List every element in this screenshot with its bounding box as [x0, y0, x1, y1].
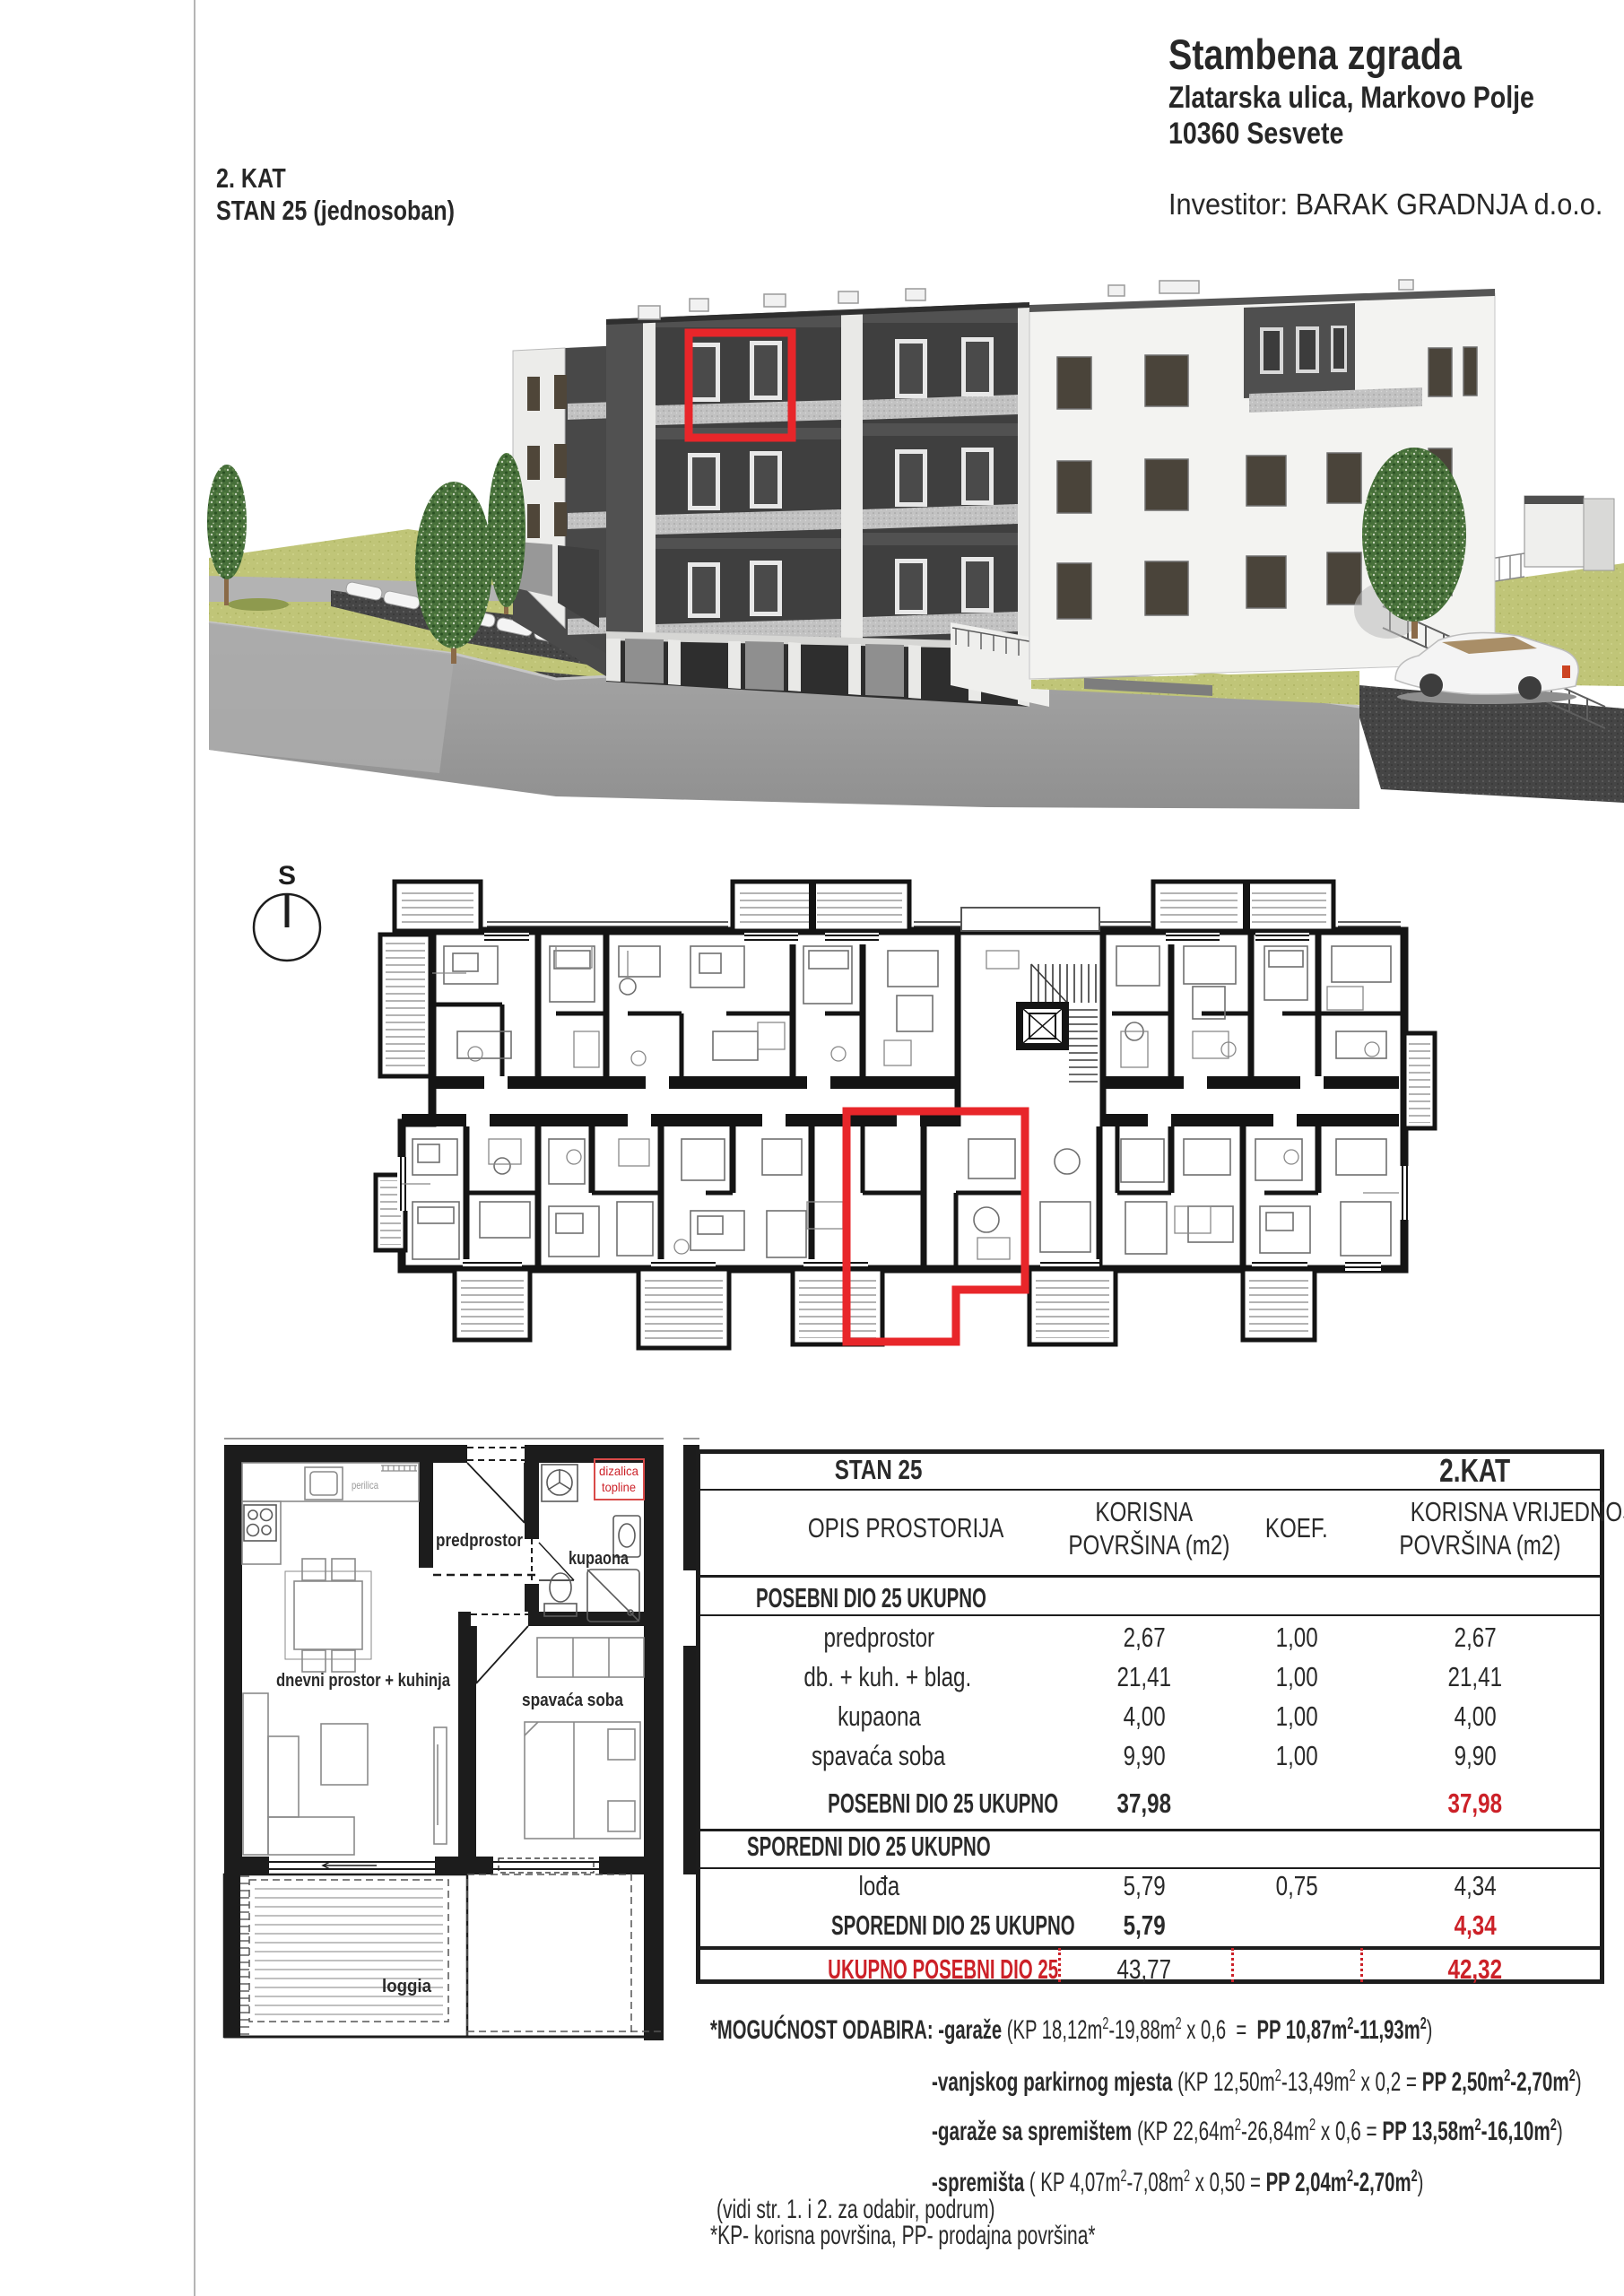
svg-text:topline: topline [602, 1480, 636, 1494]
svg-text:predprostor: predprostor [436, 1531, 523, 1551]
svg-text:dnevni prostor + kuhinja: dnevni prostor + kuhinja [276, 1671, 451, 1691]
svg-text:dizalica: dizalica [599, 1464, 638, 1478]
svg-text:S: S [278, 861, 296, 891]
svg-text:loggia: loggia [382, 1977, 432, 1996]
svg-text:spavaća soba: spavaća soba [522, 1691, 624, 1710]
svg-text:kupaona: kupaona [569, 1549, 630, 1569]
svg-text:perilica: perilica [352, 1479, 378, 1492]
